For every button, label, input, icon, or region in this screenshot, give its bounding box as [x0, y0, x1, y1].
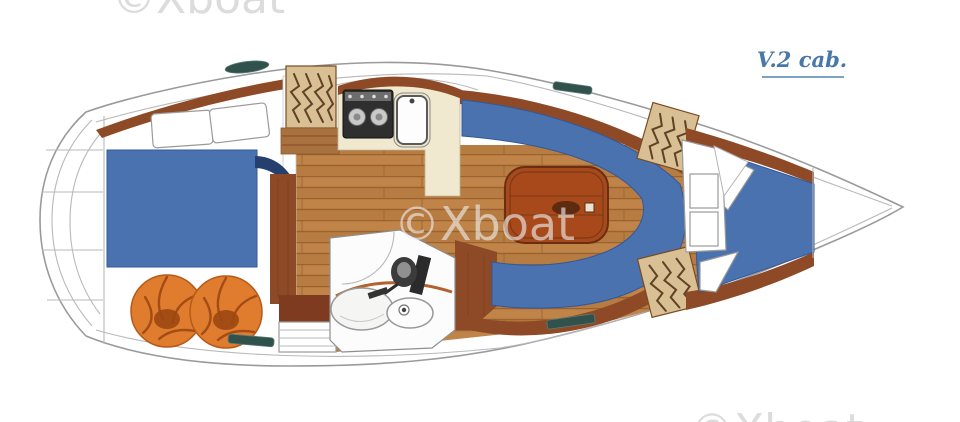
aft-berth [107, 150, 257, 267]
pillow-1 [151, 110, 213, 148]
version-label-text: V.2 cab. [757, 47, 847, 72]
watermark-center: ©Xboat [394, 197, 575, 251]
boat-floorplan-svg: ©Xboat [0, 0, 960, 422]
locker-box [279, 295, 336, 322]
version-label: V.2 cab. [757, 47, 847, 77]
pillow-2 [209, 103, 270, 144]
wardrobe-locker-galley [286, 66, 336, 128]
nightstand [270, 174, 296, 304]
watermark-bottom-right: ©Xboat [690, 405, 863, 422]
boat-floorplan: ©Xboat [0, 0, 960, 422]
faucet-dot [402, 308, 406, 312]
galley-sink-icon [394, 93, 430, 147]
washbasin-icon [387, 298, 433, 328]
galley-stove-icon [343, 90, 393, 138]
watermark-top-left: ©Xboat [112, 0, 285, 24]
louver-locker [279, 322, 336, 352]
companionway-steps [281, 128, 339, 154]
